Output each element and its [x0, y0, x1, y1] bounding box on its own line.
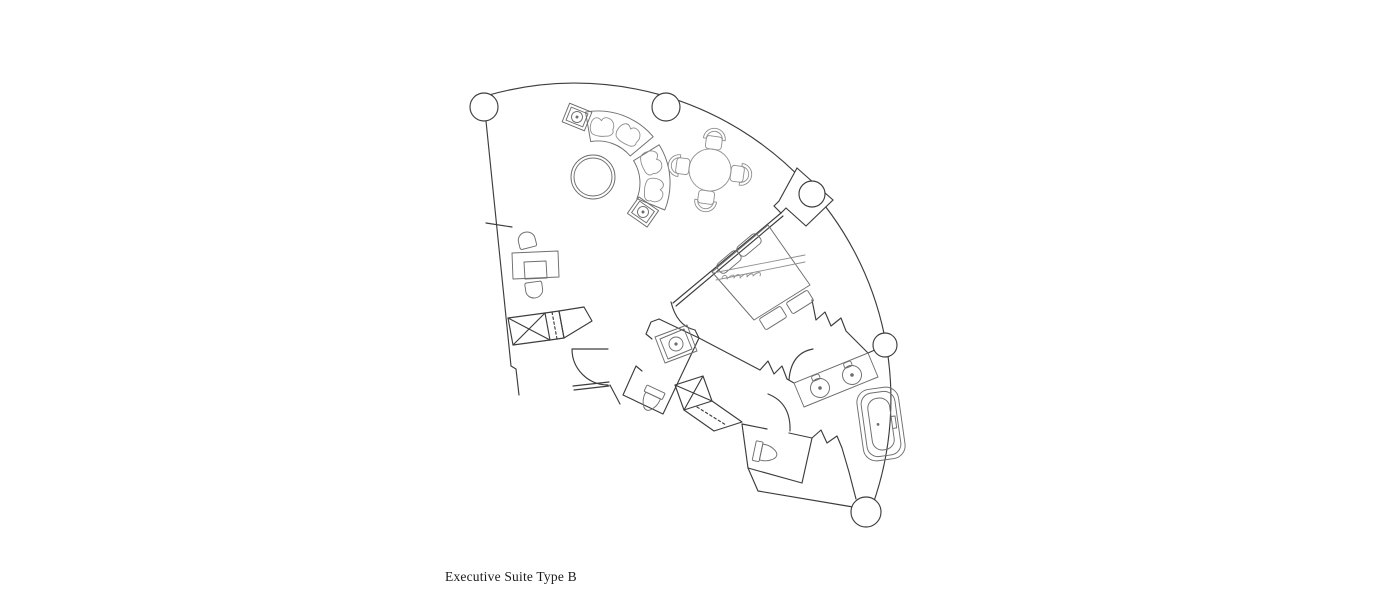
wc-door-arc [768, 394, 790, 431]
column-bottom [851, 497, 881, 527]
sofa-cushion [590, 116, 615, 137]
dining-chair [702, 127, 727, 151]
column-top-middle [652, 93, 680, 121]
wall-tick [486, 223, 512, 227]
wc-toilet [752, 441, 779, 465]
floor-plan-drawing [0, 0, 1400, 595]
entry-door [572, 349, 608, 385]
wc-walls [742, 394, 812, 483]
floor-plan-page: Executive Suite Type B [0, 0, 1400, 595]
entry-wardrobe [508, 307, 592, 345]
desk-set [512, 230, 559, 299]
bathtub [855, 385, 907, 462]
living-area [512, 103, 757, 299]
foot-bench-cushion [786, 290, 814, 314]
building-shell [486, 83, 891, 507]
sofa-cushion [643, 177, 665, 203]
hall-partition-wall [699, 338, 760, 370]
column-top-left [470, 93, 498, 121]
hall-side-wall [610, 385, 620, 404]
side-table-lamp-1 [562, 103, 592, 131]
left-wall [486, 121, 519, 395]
sofa-cushion [638, 148, 664, 176]
dining-chair [693, 189, 718, 213]
desk-chair [525, 281, 544, 299]
powder-room-walls [623, 319, 699, 414]
powder-sink [655, 325, 697, 363]
dining-set [663, 123, 758, 218]
dining-table [686, 146, 733, 193]
powder-room [637, 325, 697, 414]
flower-garland [722, 273, 760, 279]
bath-door-arc [789, 349, 813, 380]
vanity-sink [838, 358, 864, 387]
desk [512, 251, 559, 279]
bath-south-wall [812, 430, 856, 499]
bedroom-headboard-wall [673, 213, 783, 306]
plan-caption: Executive Suite Type B [445, 569, 577, 585]
foot-bench-cushion [759, 306, 787, 330]
wall-break-north [812, 300, 877, 353]
coffee-table [571, 155, 615, 199]
dining-chair [729, 162, 753, 187]
double-vanity [794, 353, 878, 407]
dining-chair [667, 153, 691, 178]
column-mid-right [799, 181, 825, 207]
desk-chair [517, 230, 537, 250]
entry-threshold [573, 382, 609, 390]
vanity-sink [806, 371, 832, 400]
powder-toilet [637, 385, 665, 414]
hall-closet [675, 376, 742, 431]
bedroom [712, 225, 814, 330]
column-right [873, 333, 897, 357]
sofa-cushion [613, 120, 643, 149]
suite-bottom-wall [748, 468, 853, 507]
